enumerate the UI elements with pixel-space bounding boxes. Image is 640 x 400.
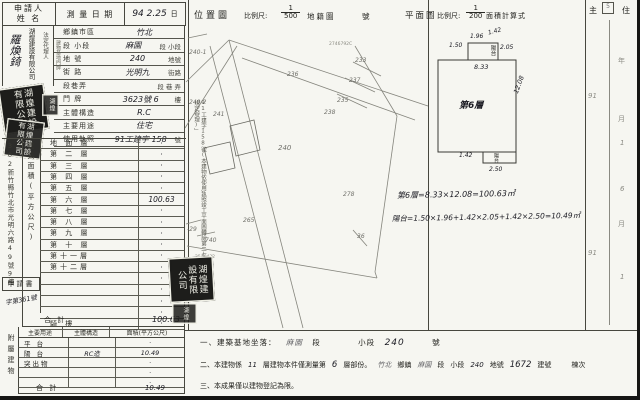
floor-area-row: 第十一層 · (40, 251, 184, 262)
area-calc-label: 面積計算式 (486, 11, 526, 21)
floor-area-row: 第 十 層 · (40, 240, 184, 251)
location-row: 段巷弄 段 巷 弄 (54, 80, 184, 93)
parcel-label: 233 (355, 57, 367, 64)
strip-mark: 91 (588, 92, 597, 100)
margin-handwritten-note: 91工建字158號(本建物依使用執照竣工平面圖轉繪第二七三條規定辦理)」 (180, 100, 206, 268)
strip-mark: 1 (620, 139, 624, 147)
agent-label: 法定代理人 (41, 32, 49, 60)
dim-label: 1.42 (459, 152, 472, 159)
strip-mark: 6 (620, 185, 624, 193)
applicant-cell: 羅煥錡 湖煌建設有限公司 法定代理人 (2, 26, 54, 86)
divider (185, 330, 638, 331)
attached-row: 陽 台 RC造 10.49 (18, 348, 184, 358)
applicant-header-row: 申請人 姓 名 測 量 日 期 94 2.25 日 (2, 2, 186, 26)
strip-mark: 月 (618, 114, 625, 124)
location-map-title: 位置圖 (194, 8, 230, 21)
dim-label: 1.50 (449, 42, 462, 49)
parcel-label: 740 (205, 237, 217, 244)
floor-area-row: 第 九 層 · (40, 228, 184, 239)
dim-label: 1.96 (470, 33, 483, 40)
strip-mark: 年 (618, 56, 625, 66)
cadastral-map: 240-1 240-2 241 236 233 237 235 238 240 … (185, 32, 430, 330)
attached-total-value: 10.49 (126, 384, 184, 392)
cadastral-map-label: 地籍圖 (307, 11, 336, 22)
parcel-label: 240-1 (189, 49, 206, 56)
floor-area-row: 地 面 層 · (40, 138, 184, 149)
parcel-label: 278 (343, 191, 355, 198)
strip-mark: 月 (618, 219, 625, 229)
parcel-label: 237 (349, 77, 361, 84)
plan-scale-label: 比例尺: (437, 11, 460, 21)
parcel-label: 240 (278, 144, 292, 152)
dim-label: 2.50 (489, 166, 502, 173)
company-seal: 湖煌建設有限公司 (168, 256, 215, 303)
parcel-label: 236 (287, 71, 299, 78)
floor-area-side-label: 建築面積(平方公尺) (26, 142, 36, 310)
parcel-label: 241 (213, 111, 224, 118)
survey-mark-number: 2746792C (329, 41, 352, 47)
parcel-label: 235 (337, 97, 349, 104)
balcony-label: 陽台 (493, 153, 498, 163)
survey-form-page: 申請人 姓 名 測 量 日 期 94 2.25 日 羅煥錡 湖煌建設有限公司 法… (0, 0, 640, 400)
location-row: 段 小段 麻園 段 小段 (54, 39, 184, 52)
floor-area-row: 第 八 層 · (40, 217, 184, 228)
attached-table: 平 台 · 陽 台 RC造 10.49 突出物 · · · (18, 338, 185, 388)
floor-area-row: · (40, 273, 184, 284)
location-row: 主要用途 住宅 (54, 120, 184, 133)
floor-area-row: 第 五 層 · (40, 183, 184, 194)
attached-row: · (18, 368, 184, 378)
balcony-label: 陽台 (489, 45, 495, 56)
note-line-2: 二、本建物係11層建物本件僅測量第6層部份。竹北鄉鎮麻園段小段240地號1672… (200, 360, 635, 370)
strip-mark: 91 (588, 249, 597, 257)
applicant-name: 羅煥錡 (6, 34, 22, 67)
map-number-label: 號 (362, 11, 370, 22)
strip-header: 住 (622, 5, 630, 16)
floor-plan-title: 平面圖 (405, 9, 437, 21)
survey-date-value: 94 2.25 日 (125, 3, 185, 25)
scan-edge (0, 396, 640, 400)
applicant-label: 申請人 姓 名 (3, 3, 56, 25)
floor-area-row: 第 三 層 · (40, 161, 184, 172)
location-row: 主體構造 R.C (54, 106, 184, 119)
divider (609, 20, 610, 325)
floor-area-row: · (40, 285, 184, 296)
floor-total-row: 合 計 100.63 (22, 313, 185, 327)
strip-header: 主 (589, 5, 597, 16)
location-scale-fraction: 1 500 (281, 5, 300, 20)
attached-total-row: 合 計 10.49 (18, 383, 185, 394)
note-line-1: 一、建築基地坐落： 麻園 段 小段 240 號 (200, 337, 630, 348)
floor-area-row: 第 七 層 · (40, 206, 184, 217)
floor-area-row: 第 六 層 100.63 (40, 194, 184, 205)
company-seal-small: 湖煌 (172, 303, 197, 324)
plan-scale-fraction: 1 200 (466, 5, 485, 20)
attached-row: 平 台 · (18, 338, 184, 348)
attached-side-label: 附屬建物 (6, 334, 16, 390)
floor-area-row: 第十二層 · (40, 262, 184, 273)
floor-area-row: 第 四 層 · (40, 172, 184, 183)
location-row: 街 路 光明九 街路 (54, 66, 184, 79)
attached-row: 突出物 · (18, 358, 184, 368)
parcel-label: 238 (324, 109, 336, 116)
location-row: 門 牌 3623號 6 樓 (54, 93, 184, 106)
location-row: 鄉鎮市區 竹北 (54, 26, 184, 39)
floor-area-table: 地 面 層 · 第 二 層 · 第 三 層 · 第 四 層 · 第 五 層 · … (40, 138, 185, 330)
strip-box: 5 (602, 2, 614, 14)
strip-mark: 1 (620, 273, 624, 281)
dim-label: 8.33 (474, 63, 488, 71)
survey-date-label: 測 量 日 期 (56, 3, 125, 25)
area-formula-floor: 第6層=8.33×12.08=100.63㎡ (397, 186, 627, 201)
location-row: 地 號 240 地號 (54, 53, 184, 66)
applicant-company: 湖煌建設有限公司 (26, 28, 36, 80)
dim-label: 2.05 (500, 44, 513, 51)
divider (22, 138, 23, 327)
parcel-label: 36 (357, 233, 365, 240)
company-seal-small: 湖煌 (42, 94, 59, 116)
location-table: 鄉鎮市區 竹北 段 小段 麻園 段 小段 地 號 240 地號 街 路 光明九 … (54, 26, 185, 147)
location-scale-label: 比例尺: (244, 11, 267, 21)
floor-area-row: 第 二 層 · (40, 149, 184, 160)
parcel-label: 265 (243, 217, 255, 224)
floor-area-row: · (40, 296, 184, 307)
attached-header-row: 主要用途 主體構造 面積(平方公尺) (18, 327, 185, 338)
room-label: 第6層 (459, 98, 483, 111)
note-line-3: 三、本成果僅以建物登記為限。 (200, 381, 500, 391)
